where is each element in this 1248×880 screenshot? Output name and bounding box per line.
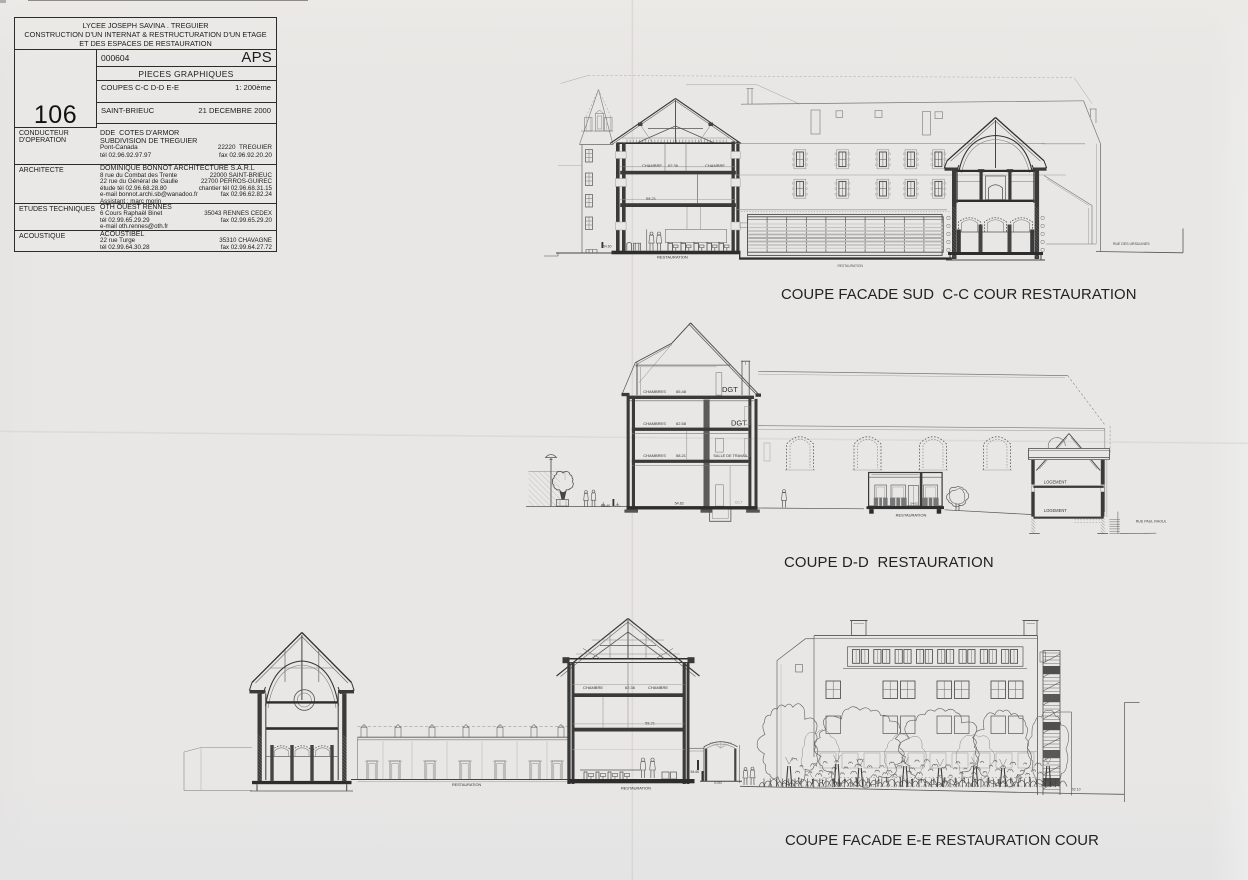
svg-text:RESTAURATION: RESTAURATION xyxy=(657,255,688,260)
svg-text:CHAMBRE: CHAMBRE xyxy=(583,685,603,690)
svg-text:58.21: 58.21 xyxy=(646,196,657,201)
svg-text:54.40: 54.40 xyxy=(601,504,610,508)
svg-text:RUE DES URSULINES: RUE DES URSULINES xyxy=(1113,242,1150,246)
svg-text:CHAMBRE: CHAMBRE xyxy=(648,685,668,690)
svg-text:RESTAURATION: RESTAURATION xyxy=(621,786,651,791)
svg-text:CHAMBRE: CHAMBRE xyxy=(642,163,662,168)
svg-text:54.62: 54.62 xyxy=(675,501,684,505)
svg-text:RESTAURATION: RESTAURATION xyxy=(838,264,864,268)
svg-text:DGT: DGT xyxy=(731,419,747,428)
svg-text:58.21: 58.21 xyxy=(676,453,687,458)
svg-text:58.21: 58.21 xyxy=(645,721,656,726)
svg-text:CC.7: CC.7 xyxy=(735,500,743,504)
svg-text:54.62: 54.62 xyxy=(910,501,918,505)
svg-text:CHAMBRES: CHAMBRES xyxy=(643,421,666,426)
svg-text:54.60: 54.60 xyxy=(603,244,612,248)
svg-text:LOGEMENT: LOGEMENT xyxy=(1044,508,1067,513)
svg-text:RUE PAUL RAOUL: RUE PAUL RAOUL xyxy=(1136,520,1167,524)
svg-text:SALLE DE TRAVAIL: SALLE DE TRAVAIL xyxy=(713,454,747,458)
svg-text:CHAMBRE: CHAMBRE xyxy=(705,163,725,168)
svg-text:62.36: 62.36 xyxy=(668,163,679,168)
svg-text:CHAMBRES: CHAMBRES xyxy=(643,453,666,458)
svg-text:62.36: 62.36 xyxy=(625,685,636,690)
svg-text:RESTAURATION: RESTAURATION xyxy=(896,513,927,518)
svg-text:52.10: 52.10 xyxy=(1072,787,1081,791)
svg-text:RESTAURATION: RESTAURATION xyxy=(452,783,481,787)
svg-text:LOGEMENT: LOGEMENT xyxy=(1044,479,1067,484)
svg-text:65.48: 65.48 xyxy=(676,389,687,394)
svg-text:DGT: DGT xyxy=(722,385,738,394)
svg-text:54.60: 54.60 xyxy=(691,770,700,774)
svg-text:CHAMBRES: CHAMBRES xyxy=(643,389,666,394)
svg-text:62.58: 62.58 xyxy=(676,421,687,426)
